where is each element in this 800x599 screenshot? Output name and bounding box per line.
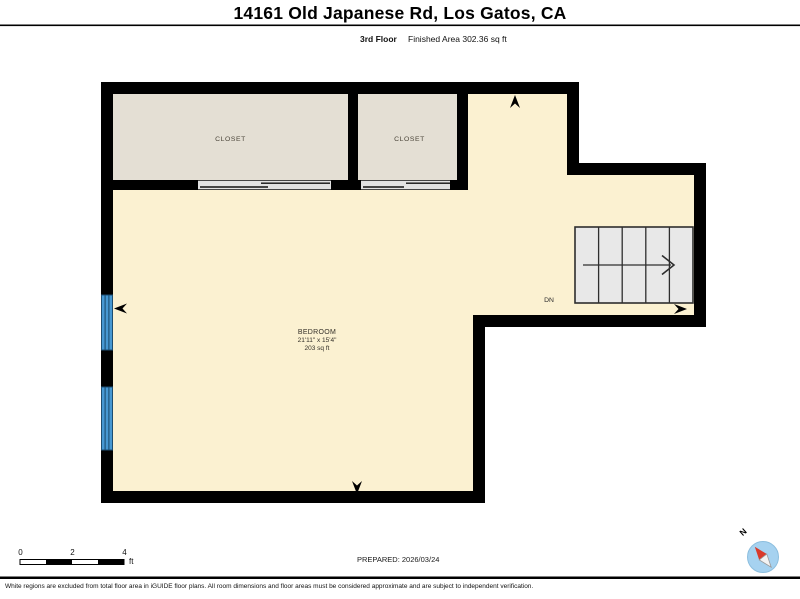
compass-icon bbox=[748, 542, 779, 573]
closet-divider-wall bbox=[348, 94, 358, 190]
closet-right-wall bbox=[457, 94, 468, 190]
footer-divider-line bbox=[0, 577, 800, 580]
bedroom-dimensions: 21'11" x 15'4" bbox=[298, 337, 337, 345]
bedroom-name: BEDROOM bbox=[298, 329, 337, 337]
scale-bar bbox=[20, 560, 124, 565]
closet-left-label: CLOSET bbox=[215, 136, 246, 144]
floor-plan-graphic bbox=[0, 0, 800, 599]
staircase bbox=[575, 227, 693, 303]
window-lower bbox=[102, 387, 113, 450]
closet-right-label: CLOSET bbox=[394, 136, 425, 144]
closet-right-door-track bbox=[361, 181, 450, 190]
bedroom-area: 203 sq ft bbox=[298, 345, 337, 353]
closet-left-door-track bbox=[198, 181, 331, 190]
scale-tick-2: 2 bbox=[70, 548, 74, 557]
disclaimer-text: White regions are excluded from total fl… bbox=[5, 583, 533, 590]
bedroom-label: BEDROOM 21'11" x 15'4" 203 sq ft bbox=[298, 329, 337, 353]
title-divider-line bbox=[0, 25, 800, 27]
prepared-date: PREPARED: 2026/03/24 bbox=[357, 555, 439, 564]
floor-plan-page: 14161 Old Japanese Rd, Los Gatos, CA 3rd… bbox=[0, 0, 800, 599]
stairs-down-label: DN bbox=[544, 297, 554, 304]
scale-tick-4: 4 bbox=[122, 548, 126, 557]
window-upper bbox=[102, 295, 113, 350]
scale-tick-0: 0 bbox=[18, 548, 22, 557]
scale-unit-label: ft bbox=[129, 557, 133, 566]
